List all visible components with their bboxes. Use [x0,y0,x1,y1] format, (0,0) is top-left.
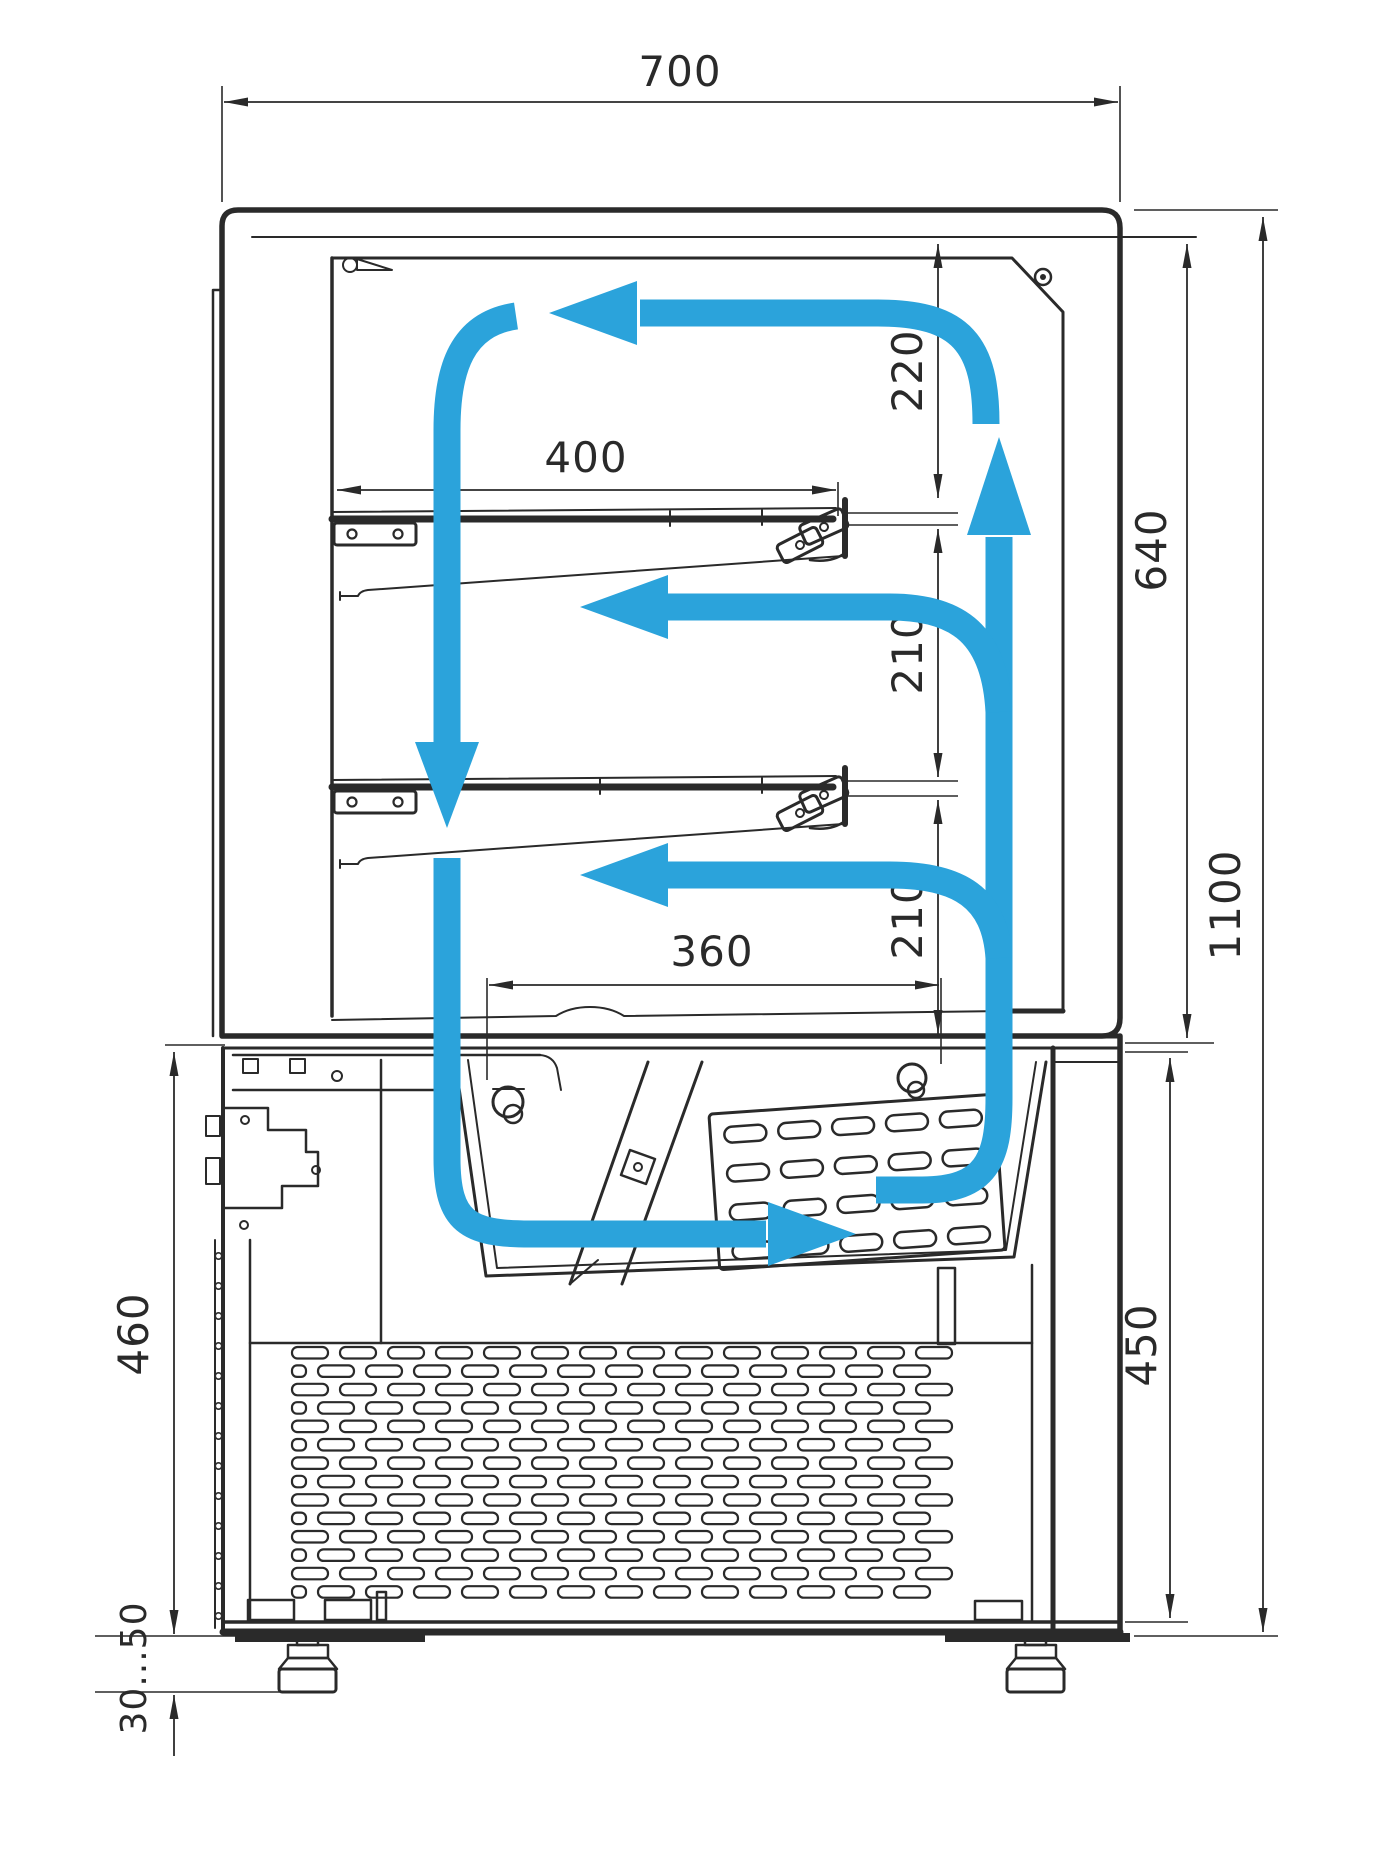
shelf-upper [332,500,849,600]
airflow-arrow-top-left-icon [549,281,637,345]
dim-1100-label: 1100 [1201,850,1250,961]
dim-210-upper-label: 210 [883,611,932,694]
dim-220-label: 220 [883,329,932,412]
shelf-lower [332,768,849,868]
airflow-arrow-mid-left-icon [580,575,668,639]
airflow-arrow-up-icon [967,437,1031,535]
display-case-drawing: 700 400 360 220 210 210 640 1100 450 460… [0,0,1391,1864]
dim-460-label: 460 [109,1292,158,1375]
drawing-page: 700 400 360 220 210 210 640 1100 450 460… [0,0,1391,1864]
airflow-left-downcomer [447,316,516,742]
airflow-arrow-low-left-icon [580,843,668,907]
ventilation-grille [292,1347,952,1598]
airflow-top-duct [640,313,986,424]
dim-foot-adjust-label: 30...50 [114,1602,155,1735]
dim-640-label: 640 [1127,508,1176,591]
dim-400-label: 400 [544,433,627,482]
dim-700-label: 700 [638,47,721,96]
dim-360-label: 360 [670,927,753,976]
airflow-branch-middle [655,607,999,712]
dim-450-label: 450 [1117,1303,1166,1386]
upper-case-outline [213,210,1196,1036]
